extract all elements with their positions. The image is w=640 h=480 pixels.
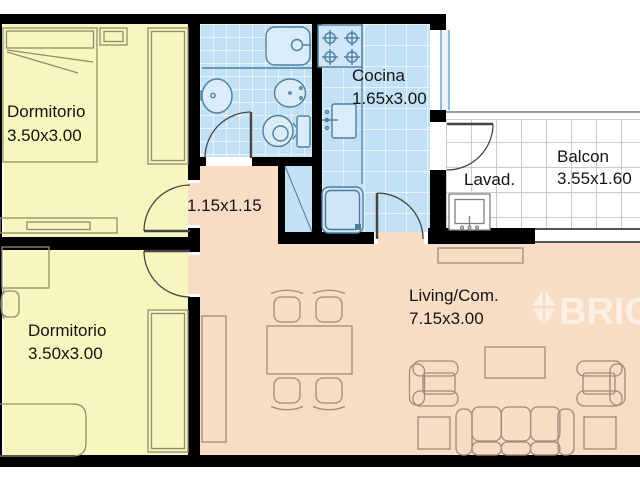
wall-hall-right (278, 166, 285, 240)
label-balcony: Balcon 3.55x1.60 (557, 146, 632, 190)
door-jamb (188, 294, 200, 297)
label-kitchen: Cocina 1.65x3.00 (352, 64, 427, 110)
wall-bedrooms-right-3 (188, 297, 200, 455)
room-name: Balcon (557, 146, 632, 168)
doorway-bedroom-bottom (188, 252, 200, 297)
label-hall: 1.15x1.15 (187, 194, 262, 217)
room-name: Dormitorio (7, 100, 85, 124)
doorway-balcony (430, 122, 446, 170)
kitchen-floor (322, 24, 430, 232)
door-jamb (188, 225, 200, 228)
label-laundry: Lavad. (464, 168, 515, 191)
room-name: Cocina (352, 64, 427, 87)
wall-top (0, 14, 446, 24)
room-dims: 1.65x3.00 (352, 87, 427, 110)
wall-kitchen-right-2 (430, 110, 446, 122)
room-name: Living/Com. (409, 284, 499, 307)
label-bedroom-bottom: Dormitorio 3.50x3.00 (28, 319, 106, 365)
room-name: Lavad. (464, 168, 515, 191)
floor-plan: Dormitorio 3.50x3.00 Dormitorio 3.50x3.0… (0, 0, 640, 480)
room-name: Dormitorio (28, 319, 106, 342)
living-balcony-window (535, 228, 640, 243)
kitchen-window (440, 30, 450, 110)
door-jamb (188, 180, 200, 183)
vent-shaft (285, 166, 312, 232)
wall-bottom (0, 455, 640, 467)
room-dims: 3.50x3.00 (7, 124, 85, 148)
label-bedroom-top: Dormitorio 3.50x3.00 (7, 100, 85, 148)
label-living: Living/Com. 7.15x3.00 (409, 284, 499, 330)
room-dims: 3.55x1.60 (557, 168, 632, 190)
living-floor (200, 240, 640, 455)
room-dims: 7.15x3.00 (409, 307, 499, 330)
room-dims: 1.15x1.15 (187, 194, 262, 217)
wall-between-bedrooms (0, 237, 188, 250)
wall-kitchen-right-1 (430, 14, 446, 30)
balcony-parapet (446, 111, 640, 120)
room-dims: 3.50x3.00 (28, 342, 106, 365)
wall-kitchen-right-3 (430, 170, 446, 244)
wall-kitchen-bottom-1 (278, 232, 374, 244)
doorway-kitchen (374, 232, 428, 244)
watermark-text: BRICK (559, 291, 640, 334)
door-jamb (424, 232, 428, 244)
doorway-bathroom (206, 157, 252, 166)
door-jamb (188, 252, 200, 255)
bathroom-floor (200, 24, 312, 157)
wall-bedrooms-right-2 (188, 228, 200, 252)
wall-bedrooms-right-1 (188, 24, 200, 180)
wall-kitchen-left (312, 14, 322, 244)
door-jamb (374, 232, 378, 244)
